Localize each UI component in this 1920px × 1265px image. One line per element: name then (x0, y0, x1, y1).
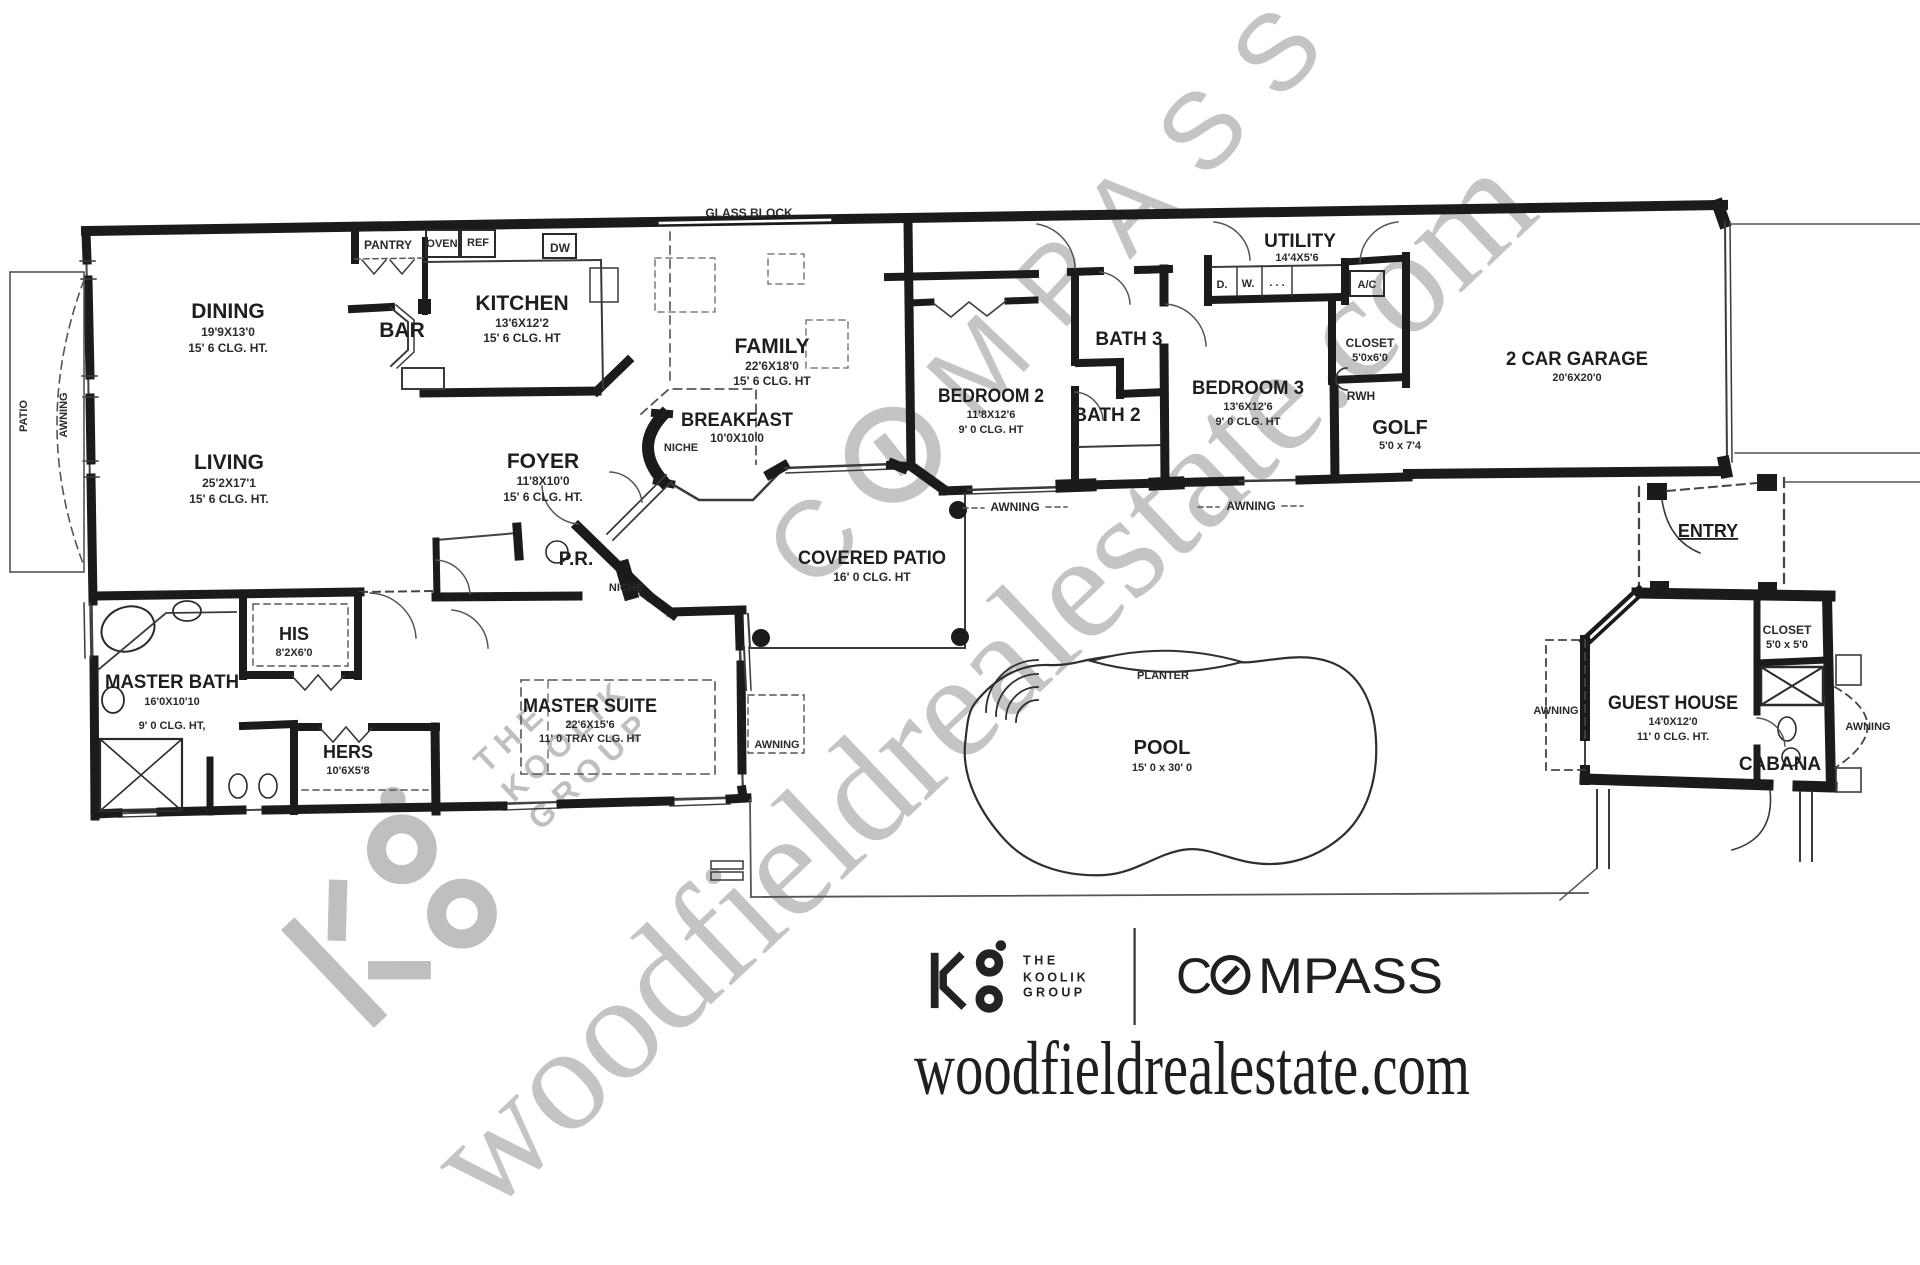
svg-text:CLOSET: CLOSET (1763, 623, 1812, 637)
svg-text:AWNING: AWNING (754, 739, 799, 751)
svg-text:AWNING: AWNING (990, 500, 1039, 514)
svg-text:FOYER: FOYER (507, 450, 579, 473)
svg-text:5'0 x 5'0: 5'0 x 5'0 (1766, 639, 1808, 651)
svg-text:GROUP: GROUP (1023, 986, 1085, 1000)
svg-text:15' 6 CLG. HT: 15' 6 CLG. HT (733, 374, 811, 388)
svg-text:BATH 3: BATH 3 (1095, 329, 1162, 350)
svg-text:16' 0 CLG. HT: 16' 0 CLG. HT (833, 570, 911, 584)
svg-text:KITCHEN: KITCHEN (475, 292, 568, 315)
svg-text:9' 0 CLG. HT,: 9' 0 CLG. HT, (139, 720, 206, 732)
svg-text:AWNING: AWNING (58, 392, 70, 437)
svg-text:HIS: HIS (279, 624, 309, 644)
svg-text:11'8X12'6: 11'8X12'6 (967, 409, 1016, 421)
svg-text:BATH 2: BATH 2 (1073, 405, 1140, 426)
svg-text:9' 0 CLG. HT: 9' 0 CLG. HT (959, 424, 1024, 436)
svg-text:22'6X18'0: 22'6X18'0 (745, 359, 799, 373)
svg-text:woodfieldrealestate.com: woodfieldrealestate.com (914, 1027, 1470, 1111)
svg-text:PATIO: PATIO (18, 400, 30, 432)
svg-text:15' 6 CLG. HT.: 15' 6 CLG. HT. (503, 490, 583, 504)
svg-text:POOL: POOL (1134, 737, 1191, 759)
svg-text:AWNING: AWNING (1226, 499, 1275, 513)
svg-text:8'2X6'0: 8'2X6'0 (275, 647, 312, 659)
svg-text:DW: DW (550, 241, 571, 255)
svg-text:GOLF: GOLF (1372, 417, 1428, 439)
svg-text:PLANTER: PLANTER (1137, 670, 1189, 682)
svg-text:. . .: . . . (1269, 277, 1284, 289)
svg-text:AWNING: AWNING (1533, 705, 1578, 717)
svg-text:2 CAR GARAGE: 2 CAR GARAGE (1506, 349, 1648, 370)
svg-text:5'0x6'0: 5'0x6'0 (1352, 352, 1388, 364)
svg-text:A/C: A/C (1358, 279, 1377, 291)
svg-text:15' 6 CLG. HT.: 15' 6 CLG. HT. (188, 341, 268, 355)
svg-text:PANTRY: PANTRY (364, 238, 412, 252)
svg-text:10'6X5'8: 10'6X5'8 (326, 765, 369, 777)
svg-text:15' 6 CLG. HT.: 15' 6 CLG. HT. (189, 492, 269, 506)
svg-text:KOOLIK: KOOLIK (1023, 970, 1088, 984)
svg-text:HERS: HERS (323, 742, 373, 762)
svg-text:11' 0 TRAY CLG. HT: 11' 0 TRAY CLG. HT (539, 733, 642, 745)
svg-text:BREAKFAST: BREAKFAST (681, 410, 793, 431)
svg-text:MPASS: MPASS (1258, 948, 1443, 1004)
svg-text:20'6X20'0: 20'6X20'0 (1552, 372, 1601, 384)
svg-text:ENTRY: ENTRY (1678, 521, 1738, 541)
svg-text:25'2X17'1: 25'2X17'1 (202, 476, 256, 490)
svg-text:BAR: BAR (379, 319, 425, 342)
svg-text:10'0X10'0: 10'0X10'0 (710, 431, 764, 445)
svg-text:UTILITY: UTILITY (1264, 231, 1336, 252)
svg-text:CABANA: CABANA (1739, 754, 1822, 775)
svg-text:BEDROOM 3: BEDROOM 3 (1192, 378, 1304, 399)
svg-text:AWNING: AWNING (1845, 721, 1890, 733)
svg-text:CLOSET: CLOSET (1346, 336, 1395, 350)
svg-text:NICHE: NICHE (664, 442, 698, 454)
svg-text:MASTER SUITE: MASTER SUITE (523, 696, 657, 717)
svg-text:11'8X10'0: 11'8X10'0 (516, 474, 569, 488)
svg-text:14'0X12'0: 14'0X12'0 (1648, 716, 1697, 728)
svg-text:BEDROOM 2: BEDROOM 2 (938, 386, 1044, 407)
svg-text:OVEN: OVEN (426, 238, 457, 250)
svg-text:FAMILY: FAMILY (734, 335, 809, 358)
svg-text:COVERED PATIO: COVERED PATIO (798, 548, 946, 569)
svg-text:GUEST HOUSE: GUEST HOUSE (1608, 693, 1738, 714)
svg-text:C: C (1176, 948, 1212, 1004)
svg-text:W.: W. (1242, 278, 1255, 290)
svg-text:THE: THE (1023, 954, 1059, 968)
svg-text:19'9X13'0: 19'9X13'0 (201, 325, 255, 339)
svg-text:LIVING: LIVING (194, 451, 264, 474)
svg-text:RWH: RWH (1347, 389, 1375, 403)
svg-text:13'6X12'2: 13'6X12'2 (495, 316, 549, 330)
svg-text:P.R.: P.R. (559, 549, 594, 570)
svg-text:11' 0 CLG. HT.: 11' 0 CLG. HT. (1637, 731, 1709, 743)
svg-text:NICHE: NICHE (609, 582, 643, 594)
svg-text:14'4X5'6: 14'4X5'6 (1275, 252, 1318, 264)
svg-text:DINING: DINING (191, 300, 265, 323)
svg-text:GLASS BLOCK: GLASS BLOCK (705, 206, 793, 220)
svg-text:REF: REF (467, 237, 489, 249)
svg-text:D.: D. (1217, 279, 1228, 291)
svg-text:16'0X10'10: 16'0X10'10 (144, 696, 199, 708)
svg-text:15' 0 x 30' 0: 15' 0 x 30' 0 (1132, 762, 1192, 774)
svg-text:15' 6 CLG. HT: 15' 6 CLG. HT (483, 331, 561, 345)
svg-text:5'0 x 7'4: 5'0 x 7'4 (1379, 440, 1422, 452)
svg-text:MASTER BATH: MASTER BATH (105, 672, 239, 693)
svg-text:22'6X15'6: 22'6X15'6 (565, 719, 614, 731)
svg-text:13'6X12'6: 13'6X12'6 (1223, 401, 1272, 413)
svg-text:9' 0 CLG. HT: 9' 0 CLG. HT (1216, 416, 1281, 428)
